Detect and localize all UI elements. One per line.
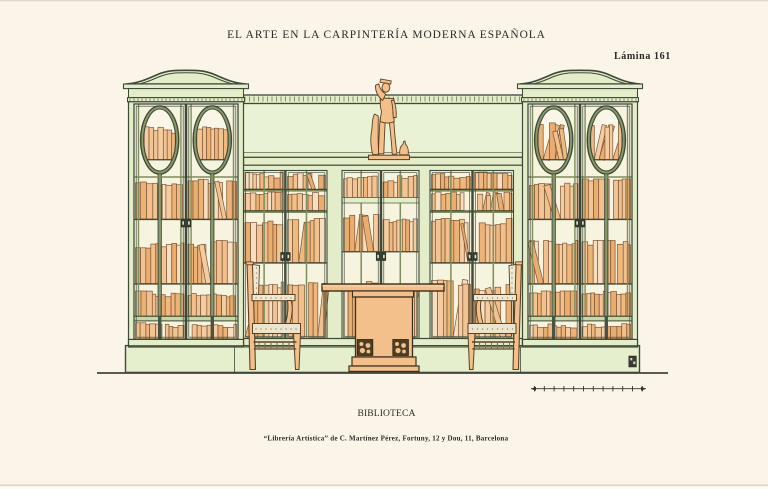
svg-text:Lámina 161: Lámina 161	[614, 51, 671, 62]
svg-text:BIBLIOTECA: BIBLIOTECA	[357, 408, 415, 419]
svg-text:EL ARTE EN LA CARPINTERÍA MODE: EL ARTE EN LA CARPINTERÍA MODERNA ESPAÑO…	[227, 29, 546, 41]
svg-text:“Librería Artística” de C. Mar: “Librería Artística” de C. Martínez Pére…	[264, 435, 509, 443]
